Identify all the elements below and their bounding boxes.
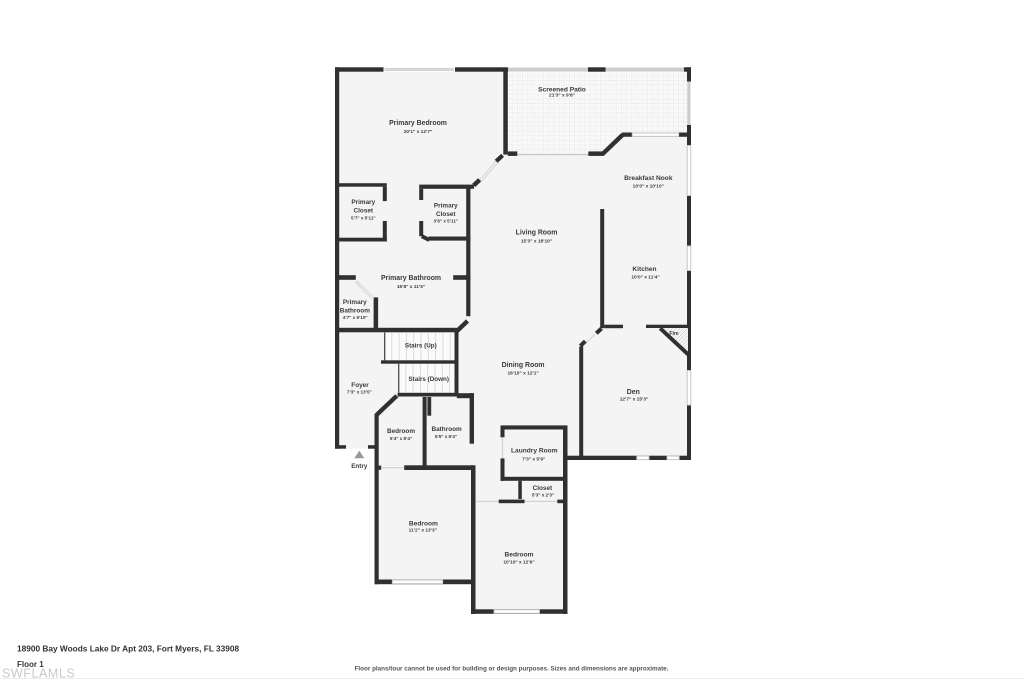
svg-text:16’10" x 12’1": 16’10" x 12’1"	[507, 371, 538, 377]
svg-text:Closet: Closet	[533, 485, 553, 492]
svg-text:5’5" x 8’4": 5’5" x 8’4"	[435, 434, 457, 439]
svg-text:Primary: Primary	[343, 299, 367, 306]
svg-text:Bedroom: Bedroom	[505, 551, 534, 558]
svg-text:5’3" x 2’3": 5’3" x 2’3"	[532, 493, 554, 498]
svg-text:12’7" x 15’3": 12’7" x 15’3"	[620, 397, 649, 403]
svg-text:Bedroom: Bedroom	[409, 520, 438, 527]
svg-text:Fire: Fire	[669, 331, 678, 337]
svg-text:10’10" x 12’9": 10’10" x 12’9"	[503, 559, 534, 565]
svg-text:15’3" x 18’10": 15’3" x 18’10"	[521, 239, 552, 245]
svg-text:21’3" x 9’8": 21’3" x 9’8"	[549, 93, 575, 99]
svg-text:11’2" x 13’3": 11’2" x 13’3"	[409, 528, 437, 534]
svg-text:5’7" x 5’11": 5’7" x 5’11"	[351, 215, 376, 220]
svg-text:Dining Room: Dining Room	[502, 362, 545, 369]
svg-text:3’6" x 5’11": 3’6" x 5’11"	[434, 219, 459, 224]
svg-text:Bathroom: Bathroom	[340, 308, 370, 315]
svg-text:Stairs (Down): Stairs (Down)	[408, 376, 449, 383]
svg-text:15’8" x 11’5": 15’8" x 11’5"	[397, 284, 425, 290]
svg-text:Stairs (Up): Stairs (Up)	[405, 343, 437, 350]
svg-text:4’7" x 5’10": 4’7" x 5’10"	[343, 315, 368, 320]
svg-text:Breakfast Nook: Breakfast Nook	[624, 175, 673, 182]
svg-text:Laundry Room: Laundry Room	[511, 448, 558, 455]
svg-text:10’0" x 11’4": 10’0" x 11’4"	[631, 275, 659, 281]
svg-text:Primary Bedroom: Primary Bedroom	[389, 120, 447, 127]
svg-text:Screened Patio: Screened Patio	[538, 86, 586, 93]
svg-text:Bathroom: Bathroom	[432, 426, 462, 433]
svg-text:7’3" x 5’9": 7’3" x 5’9"	[522, 456, 545, 462]
svg-text:Floor plans/tour cannot be use: Floor plans/tour cannot be used for buil…	[355, 666, 669, 673]
svg-text:Entry: Entry	[351, 463, 368, 470]
svg-text:Living Room: Living Room	[516, 230, 558, 237]
svg-text:10’0" x 10’10": 10’0" x 10’10"	[633, 184, 664, 190]
svg-text:7’3" x 13’5": 7’3" x 13’5"	[347, 389, 372, 394]
svg-text:Primary Bathroom: Primary Bathroom	[381, 275, 441, 282]
svg-text:Closet: Closet	[354, 208, 374, 215]
svg-text:5’4" x 8’4": 5’4" x 8’4"	[390, 436, 412, 441]
svg-text:Kitchen: Kitchen	[632, 266, 656, 273]
svg-text:Bedroom: Bedroom	[387, 428, 415, 435]
svg-text:Closet: Closet	[436, 211, 456, 218]
svg-text:Den: Den	[627, 389, 640, 396]
svg-text:Primary: Primary	[434, 203, 458, 210]
svg-text:Foyer: Foyer	[351, 382, 369, 389]
svg-text:18900 Bay Woods Lake Dr Apt 20: 18900 Bay Woods Lake Dr Apt 203, Fort My…	[17, 644, 239, 654]
svg-text:20’1" x 12’7": 20’1" x 12’7"	[404, 129, 433, 135]
svg-text:Primary: Primary	[351, 199, 375, 206]
